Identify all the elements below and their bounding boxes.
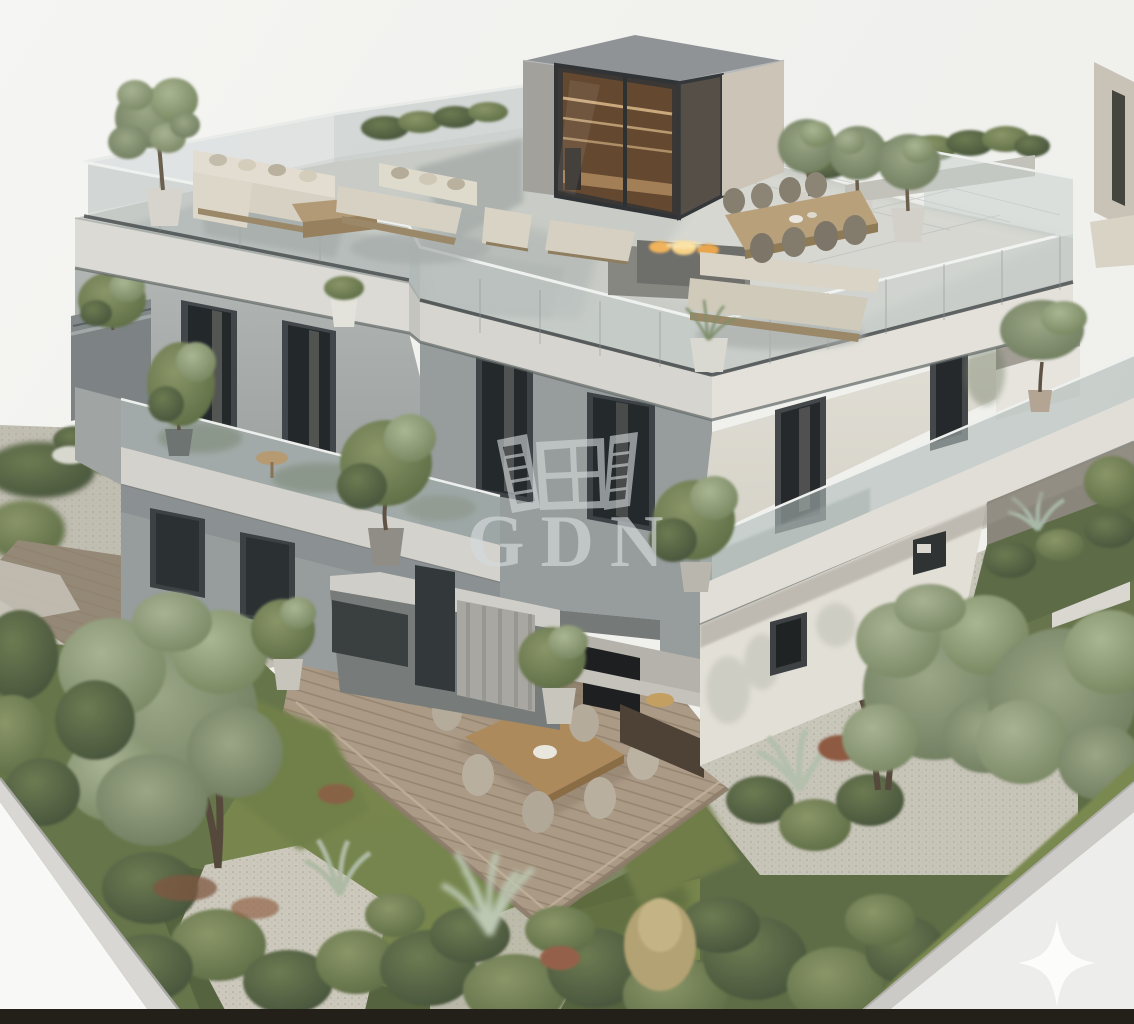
svg-text:GDN: GDN bbox=[467, 501, 679, 583]
